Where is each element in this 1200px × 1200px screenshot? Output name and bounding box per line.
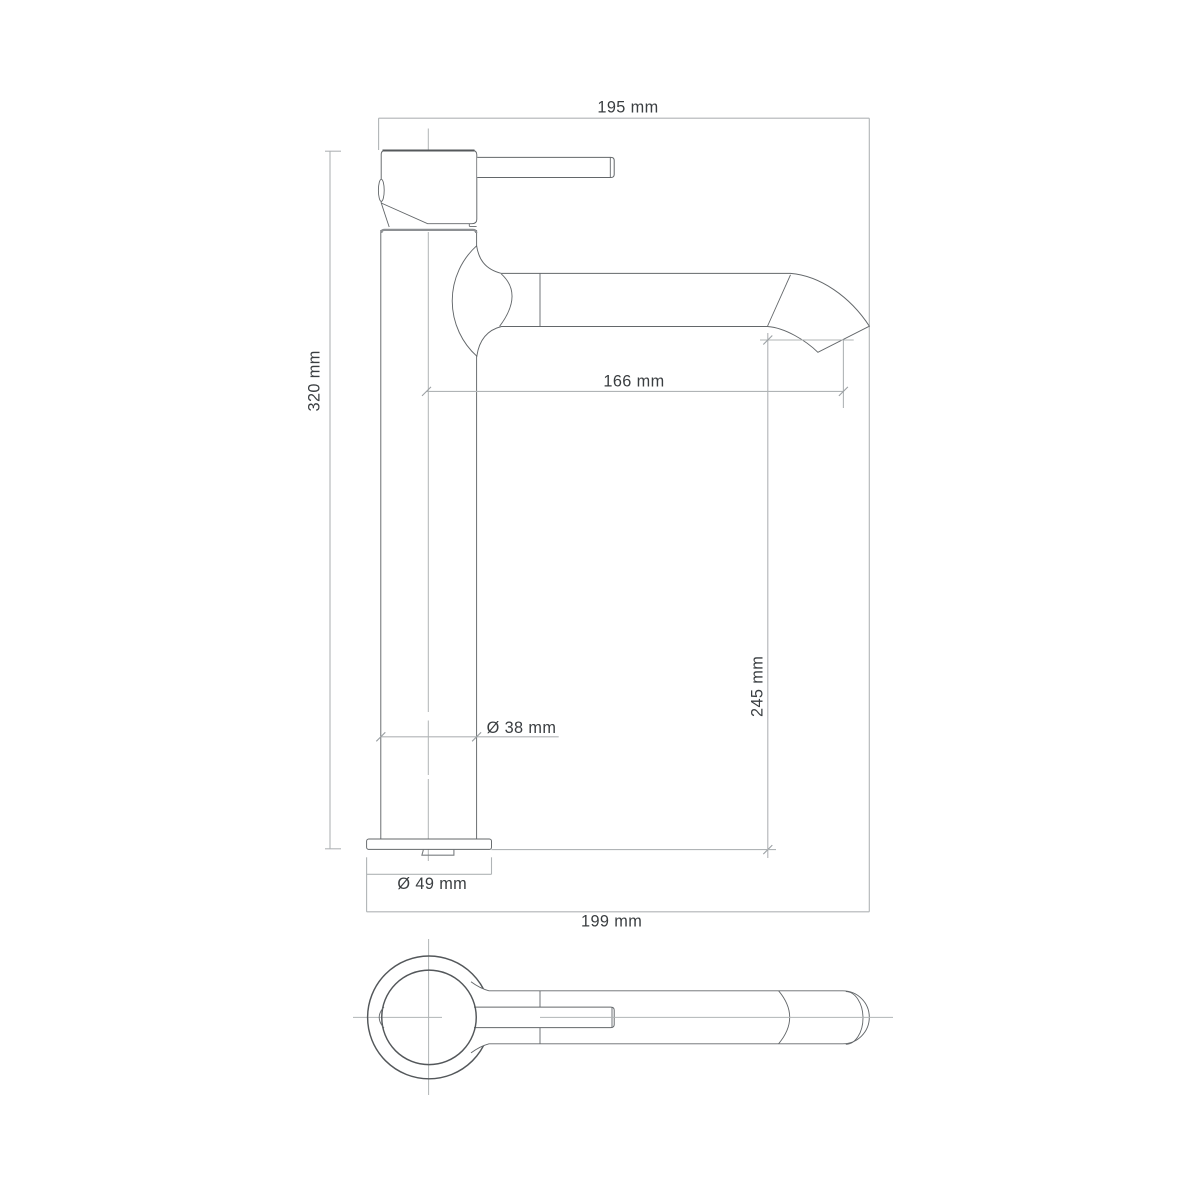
svg-text:Ø 38 mm: Ø 38 mm <box>487 719 557 737</box>
svg-text:166 mm: 166 mm <box>603 373 664 391</box>
svg-text:245 mm: 245 mm <box>749 656 767 717</box>
svg-text:320 mm: 320 mm <box>306 350 324 411</box>
svg-text:195 mm: 195 mm <box>597 99 658 117</box>
svg-text:199 mm: 199 mm <box>581 913 642 931</box>
svg-text:Ø 49 mm: Ø 49 mm <box>397 875 467 893</box>
